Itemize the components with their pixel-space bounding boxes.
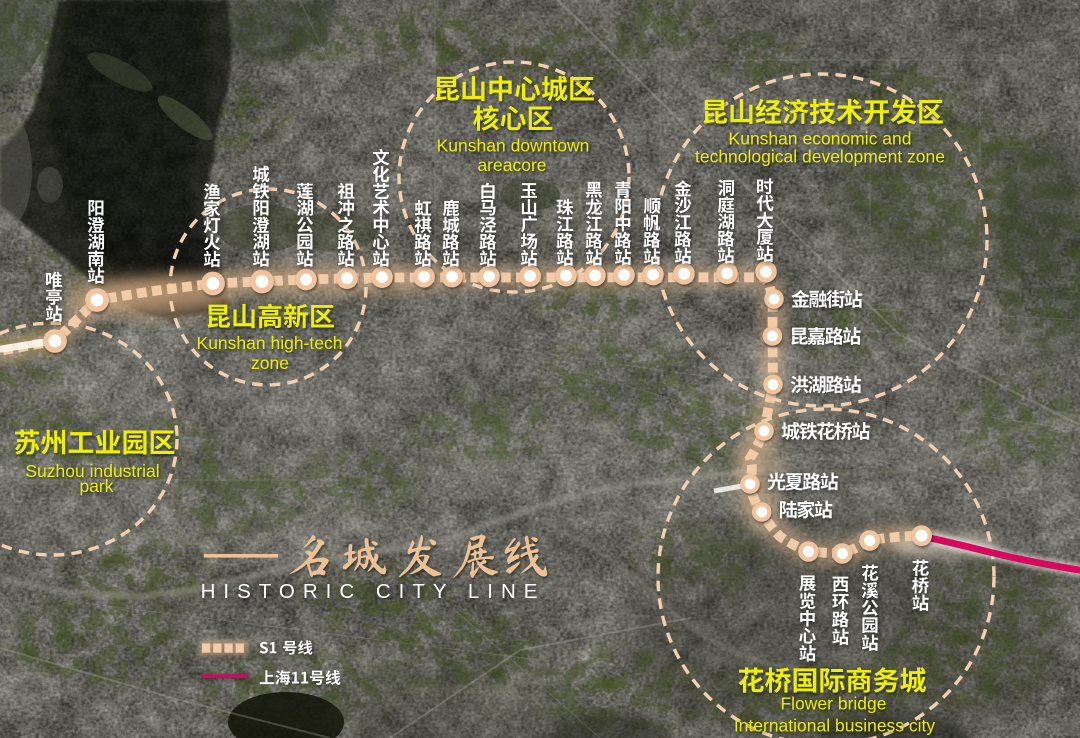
- svg-text:zone: zone: [251, 353, 289, 373]
- svg-text:HISTORIC CITY LINE: HISTORIC CITY LINE: [201, 580, 546, 603]
- svg-text:Flower bridge: Flower bridge: [780, 694, 886, 714]
- svg-text:technological development zone: technological development zone: [695, 147, 945, 167]
- svg-text:park: park: [79, 476, 113, 496]
- svg-text:Kunshan downtown: Kunshan downtown: [437, 136, 590, 156]
- svg-text:Kunshan economic and: Kunshan economic and: [729, 129, 912, 149]
- svg-text:International business city: International business city: [734, 716, 936, 736]
- svg-text:areacore: areacore: [477, 155, 546, 175]
- svg-text:Kunshan high-tech: Kunshan high-tech: [197, 333, 343, 353]
